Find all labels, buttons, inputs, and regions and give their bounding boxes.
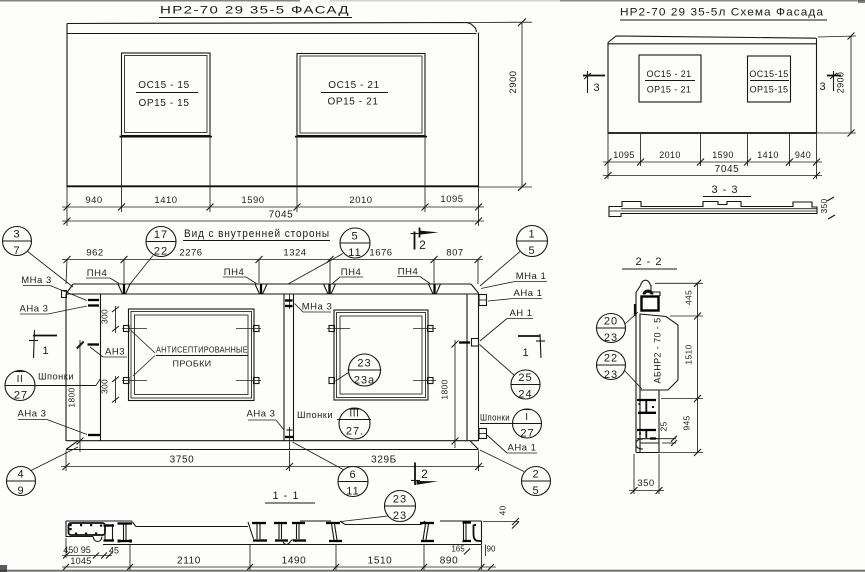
svg-text:1045: 1045: [70, 556, 91, 566]
svg-text:1: 1: [42, 345, 49, 357]
svg-text:20: 20: [604, 316, 618, 328]
svg-text:9: 9: [17, 485, 24, 497]
svg-text:2010: 2010: [349, 195, 372, 206]
svg-text:1800: 1800: [440, 379, 450, 399]
svg-text:АН3: АН3: [105, 347, 125, 358]
svg-text:ОС15 - 21: ОС15 - 21: [328, 80, 380, 91]
svg-text:329Б: 329Б: [371, 455, 397, 466]
svg-text:27: 27: [14, 390, 28, 402]
svg-text:2: 2: [421, 467, 429, 481]
svg-text:945: 945: [682, 415, 692, 430]
svg-text:1324: 1324: [283, 248, 306, 259]
svg-text:350: 350: [637, 478, 654, 489]
svg-text:1590: 1590: [241, 195, 264, 206]
svg-text:2: 2: [419, 238, 427, 252]
svg-text:4: 4: [17, 469, 24, 481]
svg-text:АНа 3: АНа 3: [20, 304, 49, 315]
svg-text:НР2-70 29 35-5 ФАСАД: НР2-70 29 35-5 ФАСАД: [160, 5, 350, 17]
svg-text:1510: 1510: [368, 556, 393, 567]
svg-text:2900: 2900: [508, 70, 519, 93]
svg-text:40: 40: [498, 505, 508, 515]
svg-text:ПН4: ПН4: [398, 267, 418, 278]
svg-text:962: 962: [86, 248, 103, 259]
svg-text:АБНР2 - 70 - 5: АБНР2 - 70 - 5: [653, 317, 663, 383]
svg-text:1676: 1676: [369, 248, 392, 259]
svg-text:27: 27: [520, 428, 534, 440]
svg-text:I: I: [525, 412, 528, 423]
svg-text:23: 23: [357, 358, 371, 370]
svg-text:11: 11: [348, 247, 361, 259]
svg-text:II: II: [17, 374, 24, 385]
svg-text:1 - 1: 1 - 1: [272, 490, 299, 502]
svg-text:22: 22: [604, 353, 618, 365]
svg-text:ОР15 - 15: ОР15 - 15: [139, 98, 190, 109]
svg-text:ПН4: ПН4: [224, 267, 244, 278]
svg-text:ПРОБКИ: ПРОБКИ: [173, 359, 212, 369]
svg-text:Шпонки: Шпонки: [38, 372, 74, 383]
svg-text:2 - 2: 2 - 2: [635, 256, 662, 268]
svg-text:25: 25: [659, 421, 669, 431]
svg-text:7045: 7045: [269, 210, 294, 221]
svg-text:1095: 1095: [613, 150, 635, 160]
svg-text:ОР15 - 21: ОР15 - 21: [328, 97, 379, 108]
svg-text:1: 1: [522, 347, 529, 359]
svg-text:23: 23: [393, 494, 407, 506]
svg-text:23: 23: [604, 332, 618, 344]
svg-text:23: 23: [604, 369, 618, 381]
svg-text:АНа 1: АНа 1: [508, 443, 537, 454]
svg-text:45: 45: [109, 546, 119, 556]
svg-text:2276: 2276: [179, 248, 202, 259]
svg-text:90: 90: [487, 545, 496, 554]
svg-text:2900: 2900: [836, 72, 846, 94]
svg-text:МНа 3: МНа 3: [21, 275, 51, 286]
svg-text:5: 5: [532, 485, 539, 497]
svg-text:АНа 1: АНа 1: [514, 288, 543, 299]
svg-text:АНа 3: АНа 3: [18, 409, 47, 420]
svg-text:1410: 1410: [154, 195, 177, 206]
svg-text:ОС15 - 21: ОС15 - 21: [646, 69, 691, 79]
svg-text:2: 2: [532, 469, 539, 481]
svg-text:7045: 7045: [715, 164, 740, 175]
svg-text:Шпонки: Шпонки: [480, 413, 510, 424]
svg-text:22: 22: [154, 246, 168, 258]
svg-text:6: 6: [349, 469, 356, 481]
svg-text:300: 300: [100, 379, 110, 394]
svg-text:25: 25: [518, 372, 532, 384]
svg-text:ОР15-15: ОР15-15: [750, 85, 789, 95]
svg-text:445: 445: [684, 290, 694, 305]
svg-text:ОС15 - 15: ОС15 - 15: [138, 80, 190, 91]
svg-text:1095: 1095: [440, 194, 463, 205]
svg-text:23а: 23а: [354, 375, 375, 387]
svg-text:Вид с внутренней стороны: Вид с внутренней стороны: [184, 228, 330, 240]
svg-text:ОР15 - 21: ОР15 - 21: [647, 85, 692, 95]
svg-text:3750: 3750: [170, 455, 195, 466]
svg-text:17: 17: [154, 229, 168, 241]
svg-text:3: 3: [13, 229, 20, 241]
svg-text:300: 300: [100, 309, 110, 324]
svg-text:АН 1: АН 1: [509, 308, 532, 319]
svg-text:НР2-70 29 35-5л Схема Фасада: НР2-70 29 35-5л Схема Фасада: [620, 7, 824, 19]
svg-text:1490: 1490: [282, 556, 307, 567]
svg-text:III: III: [349, 409, 359, 420]
svg-text:3 - 3: 3 - 3: [711, 184, 738, 196]
svg-text:ПН4: ПН4: [341, 267, 361, 278]
svg-text:807: 807: [446, 248, 463, 259]
svg-text:27.: 27.: [346, 426, 364, 438]
svg-text:450 95: 450 95: [63, 545, 91, 555]
svg-text:АНа 3: АНа 3: [247, 409, 276, 420]
svg-text:7: 7: [13, 245, 20, 257]
svg-text:ОС15-15: ОС15-15: [749, 69, 788, 79]
svg-text:5: 5: [528, 245, 535, 257]
svg-text:24: 24: [518, 389, 532, 401]
svg-text:165: 165: [451, 545, 465, 554]
svg-text:11: 11: [346, 486, 359, 498]
svg-text:3: 3: [593, 82, 600, 94]
svg-text:2010: 2010: [659, 150, 681, 160]
svg-text:890: 890: [440, 556, 459, 567]
svg-text:АНТИСЕПТИРОВАННЫЕ: АНТИСЕПТИРОВАННЫЕ: [156, 345, 248, 355]
svg-text:1510: 1510: [684, 344, 694, 364]
svg-text:1590: 1590: [712, 150, 734, 160]
svg-text:1: 1: [528, 229, 535, 241]
svg-text:1410: 1410: [757, 150, 779, 160]
svg-text:3: 3: [819, 81, 826, 93]
svg-text:940: 940: [85, 195, 102, 206]
svg-text:МНа 3: МНа 3: [302, 302, 332, 313]
svg-text:ПН4: ПН4: [87, 268, 107, 279]
svg-text:940: 940: [795, 150, 811, 160]
svg-text:1800: 1800: [67, 387, 77, 407]
svg-text:5: 5: [351, 231, 358, 243]
svg-text:Шпонки: Шпонки: [297, 410, 333, 421]
svg-text:2110: 2110: [177, 556, 201, 567]
svg-text:23: 23: [393, 510, 407, 522]
svg-text:МНа 1: МНа 1: [516, 271, 546, 282]
